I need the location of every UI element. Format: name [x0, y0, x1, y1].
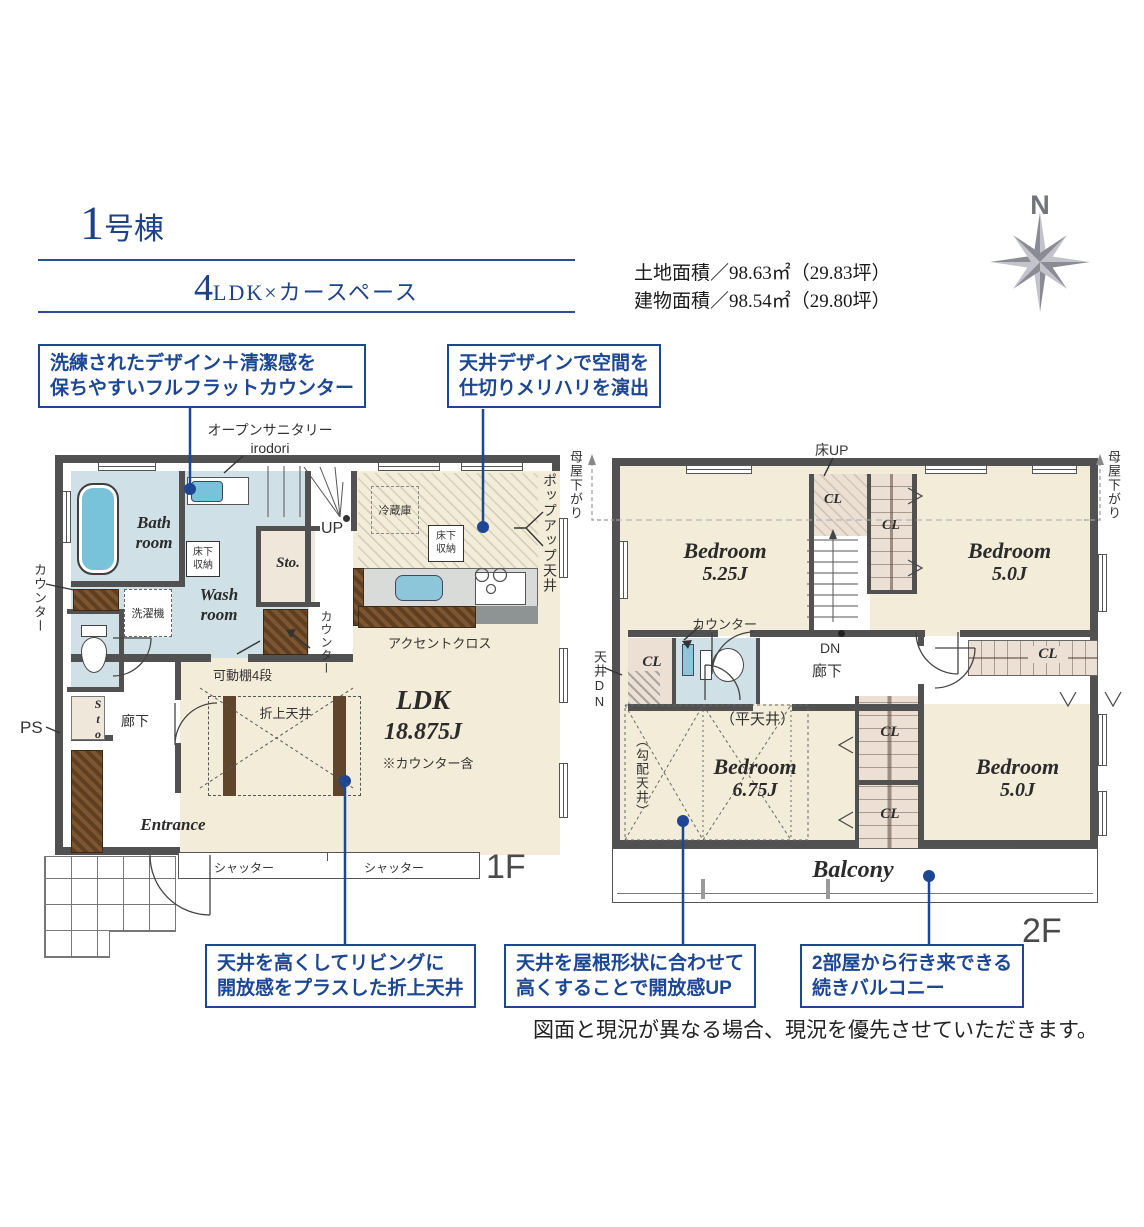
callout-dots	[184, 483, 935, 882]
annotation-overlay	[0, 0, 1144, 1227]
sloped-ceiling-pattern	[625, 705, 808, 840]
pointer-lines	[46, 456, 833, 733]
stairs-1f	[268, 466, 343, 517]
moya-guides	[592, 462, 1100, 520]
stairs-2f	[807, 536, 858, 622]
coffered-x	[200, 688, 353, 788]
closet-chevrons	[839, 488, 1121, 828]
callout-connectors	[190, 406, 929, 944]
door-arcs	[113, 632, 975, 915]
floorplan-page: 1号棟 4LDK×カースペース 土地面積／98.63㎡（29.83坪） 建物面積…	[0, 0, 1144, 1227]
stove-burners	[476, 569, 507, 594]
